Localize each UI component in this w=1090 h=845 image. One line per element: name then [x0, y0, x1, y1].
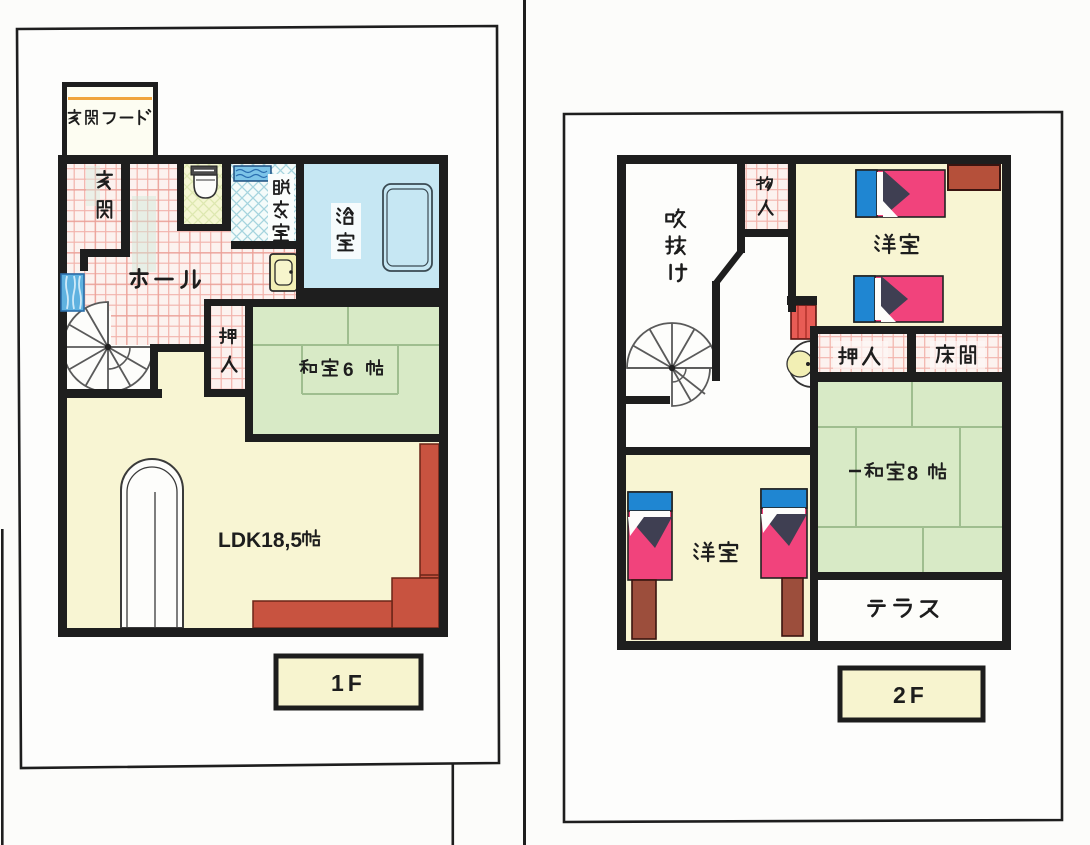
svg-text:6: 6 — [343, 360, 354, 381]
svg-text:LDK18,5: LDK18,5 — [218, 529, 302, 552]
svg-text:8: 8 — [907, 463, 918, 485]
svg-text:2F: 2F — [893, 682, 928, 708]
svg-text:1F: 1F — [331, 670, 366, 696]
